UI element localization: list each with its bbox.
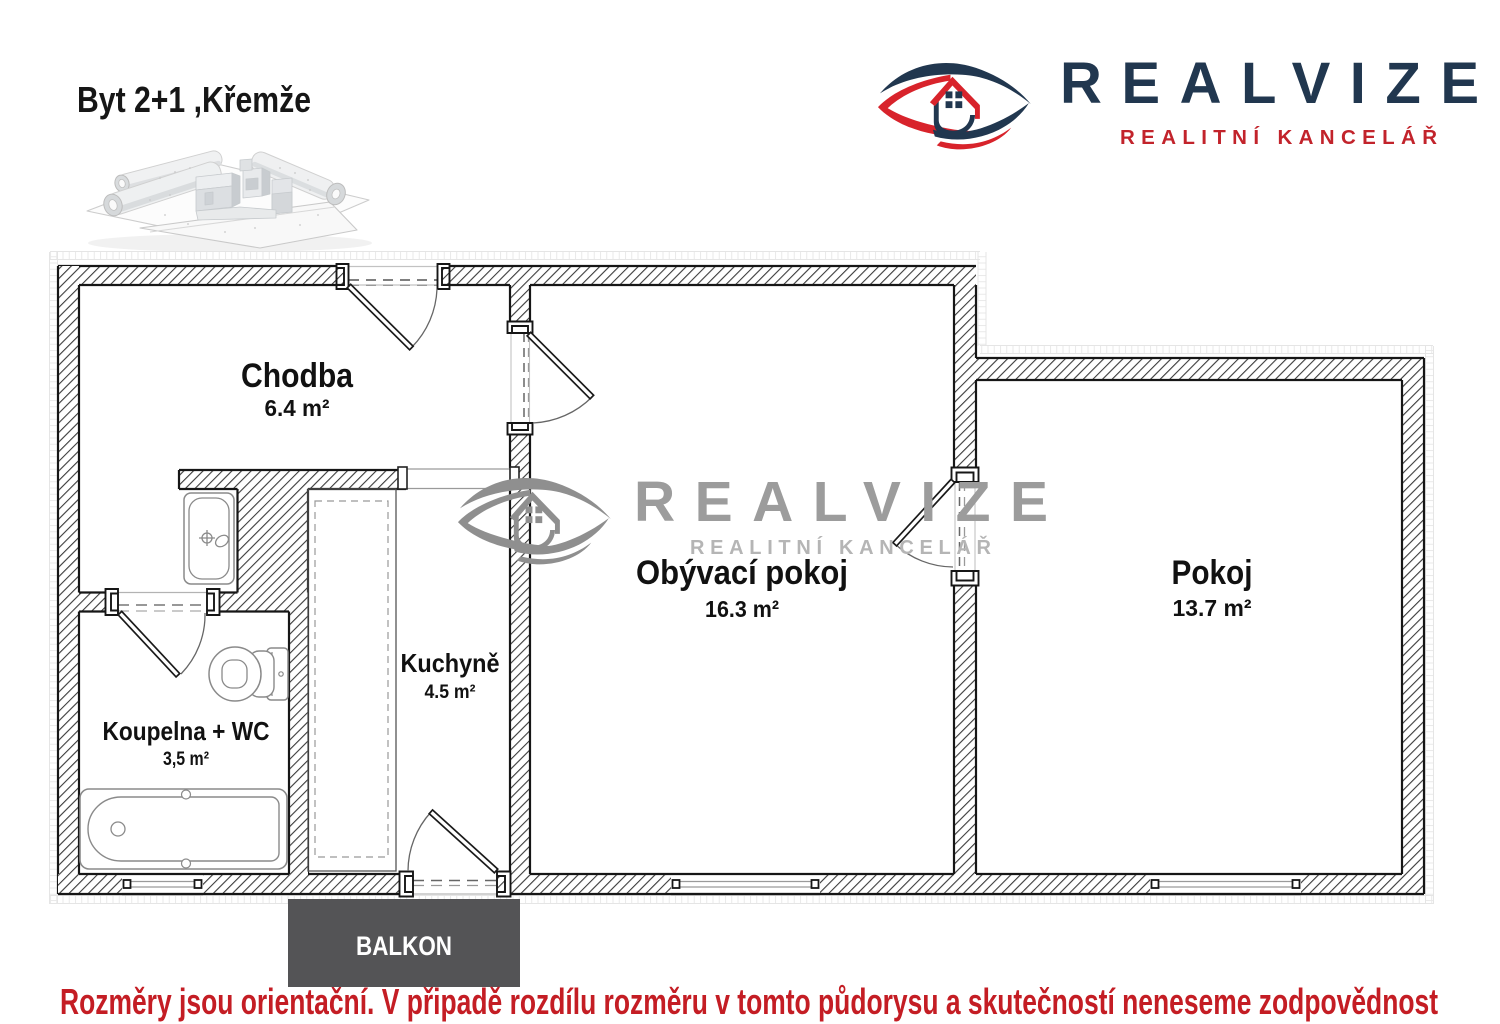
- svg-text:13.7 m²: 13.7 m²: [1173, 595, 1252, 621]
- svg-text:Obývací pokoj: Obývací pokoj: [636, 554, 848, 592]
- svg-text:4.5 m²: 4.5 m²: [425, 682, 476, 703]
- svg-text:REALITNÍ KANCELÁŘ: REALITNÍ KANCELÁŘ: [1120, 125, 1437, 149]
- svg-text:16.3 m²: 16.3 m²: [705, 596, 779, 622]
- svg-text:3,5 m²: 3,5 m²: [163, 749, 209, 770]
- svg-text:Rozměry jsou orientační. V při: Rozměry jsou orientační. V připadě rozdí…: [60, 981, 1438, 1022]
- svg-text:Chodba: Chodba: [241, 357, 354, 395]
- svg-text:Kuchyně: Kuchyně: [401, 648, 500, 678]
- svg-text:REALVIZE: REALVIZE: [1060, 51, 1479, 116]
- svg-text:REALVIZE: REALVIZE: [634, 470, 1048, 534]
- svg-text:BALKON: BALKON: [356, 931, 452, 961]
- svg-text:Byt 2+1 ,Křemže: Byt 2+1 ,Křemže: [77, 79, 311, 120]
- svg-text:Koupelna + WC: Koupelna + WC: [103, 716, 270, 746]
- svg-text:6.4 m²: 6.4 m²: [265, 395, 330, 421]
- svg-text:Pokoj: Pokoj: [1172, 554, 1253, 592]
